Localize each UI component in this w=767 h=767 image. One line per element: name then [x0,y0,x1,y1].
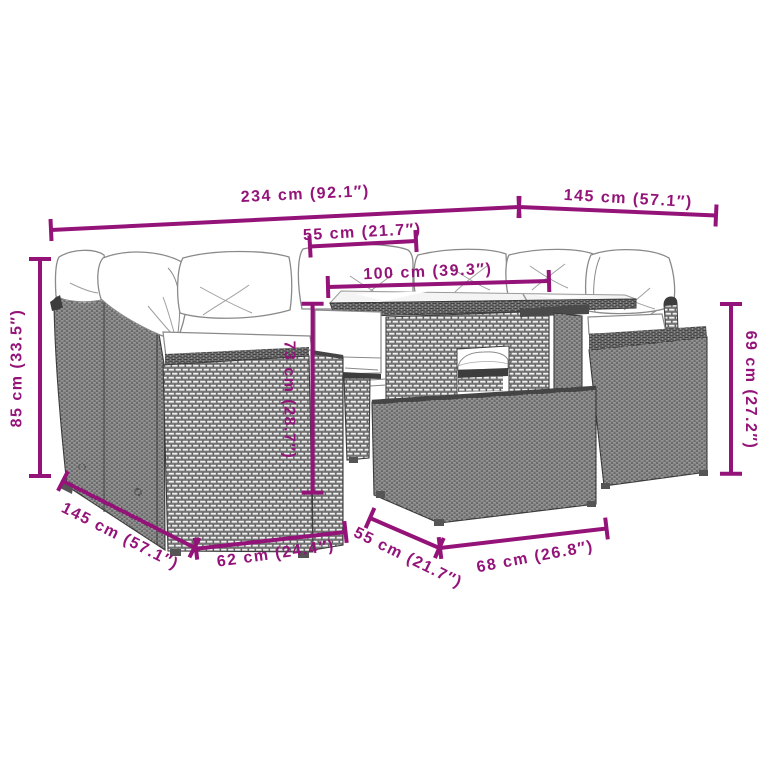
svg-text:69 cm (27.2″): 69 cm (27.2″) [742,331,759,450]
svg-text:85 cm (33.5″): 85 cm (33.5″) [9,309,26,428]
svg-text:73 cm (28.7″): 73 cm (28.7″) [281,341,298,460]
